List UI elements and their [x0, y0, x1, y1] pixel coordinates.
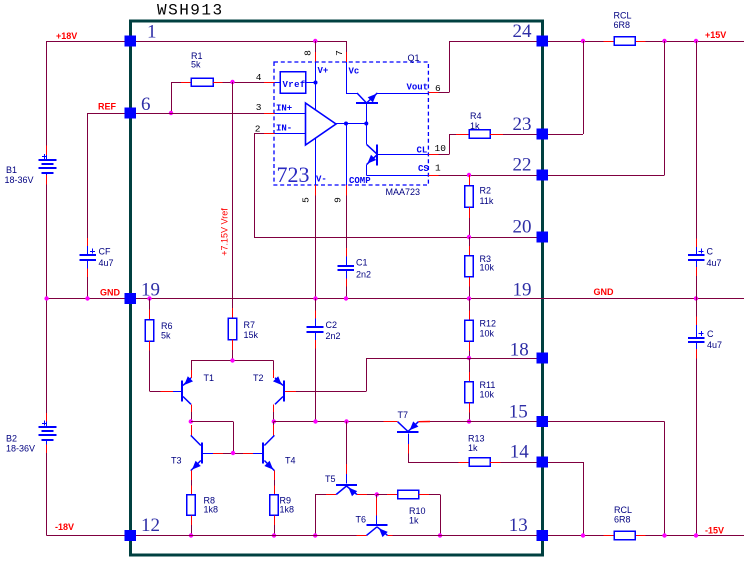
svg-text:IN+: IN+ — [276, 104, 292, 114]
svg-text:T7: T7 — [398, 410, 409, 420]
svg-text:T3: T3 — [171, 456, 182, 466]
svg-text:R11: R11 — [480, 380, 496, 390]
svg-text:3: 3 — [256, 102, 262, 113]
svg-text:WSH913: WSH913 — [157, 2, 224, 20]
svg-text:+15V: +15V — [705, 30, 726, 40]
svg-text:14: 14 — [510, 442, 530, 463]
svg-text:Vref: Vref — [283, 80, 306, 90]
svg-text:1: 1 — [147, 22, 157, 43]
svg-text:REF: REF — [98, 102, 117, 112]
svg-text:-15V: -15V — [705, 526, 724, 536]
svg-text:RCL: RCL — [614, 505, 632, 515]
svg-text:1: 1 — [435, 163, 441, 174]
svg-text:B1: B1 — [6, 165, 17, 175]
svg-text:R7: R7 — [244, 320, 256, 330]
svg-text:4u7: 4u7 — [707, 340, 722, 350]
svg-text:C: C — [707, 329, 714, 339]
svg-text:8: 8 — [303, 50, 314, 56]
svg-text:18-36V: 18-36V — [5, 175, 34, 185]
svg-text:Vc: Vc — [349, 67, 360, 77]
svg-text:T4: T4 — [285, 456, 296, 466]
svg-text:2: 2 — [255, 124, 261, 135]
svg-text:V+: V+ — [318, 66, 329, 76]
svg-text:20: 20 — [513, 217, 532, 238]
svg-text:R13: R13 — [468, 434, 485, 444]
svg-text:19: 19 — [513, 279, 532, 300]
svg-text:+18V: +18V — [56, 31, 77, 41]
svg-text:10k: 10k — [480, 329, 495, 339]
svg-text:12: 12 — [141, 515, 160, 536]
svg-text:1k: 1k — [409, 516, 419, 526]
svg-text:CL: CL — [417, 146, 428, 156]
svg-text:CS: CS — [418, 164, 429, 174]
svg-text:5k: 5k — [161, 331, 171, 341]
svg-text:15: 15 — [509, 402, 528, 423]
svg-text:C1: C1 — [356, 257, 368, 267]
svg-text:1k: 1k — [470, 121, 480, 131]
svg-text:T6: T6 — [356, 515, 367, 525]
svg-text:7: 7 — [334, 50, 345, 56]
svg-text:Vout: Vout — [407, 83, 429, 93]
svg-text:1k: 1k — [468, 443, 478, 453]
svg-text:15k: 15k — [244, 330, 259, 340]
svg-text:+7.15V Vref: +7.15V Vref — [220, 208, 230, 256]
svg-text:R4: R4 — [470, 111, 482, 121]
svg-text:4u7: 4u7 — [707, 258, 722, 268]
svg-text:T1: T1 — [204, 373, 215, 383]
svg-text:B2: B2 — [6, 434, 17, 444]
svg-text:6R8: 6R8 — [614, 515, 631, 525]
svg-text:13: 13 — [509, 515, 528, 536]
svg-text:1k8: 1k8 — [280, 505, 295, 515]
svg-text:18: 18 — [510, 340, 529, 361]
svg-text:T2: T2 — [253, 373, 264, 383]
svg-text:GND: GND — [594, 287, 615, 297]
svg-text:T5: T5 — [325, 474, 336, 484]
svg-text:5k: 5k — [191, 60, 201, 70]
svg-text:5: 5 — [301, 197, 312, 203]
svg-text:4u7: 4u7 — [99, 258, 114, 268]
svg-text:6: 6 — [141, 94, 151, 115]
svg-text:10: 10 — [435, 143, 447, 154]
svg-text:RCL: RCL — [614, 11, 632, 21]
svg-text:-18V: -18V — [55, 522, 74, 532]
svg-text:COMP: COMP — [349, 176, 371, 186]
svg-text:11k: 11k — [480, 196, 494, 206]
svg-text:22: 22 — [513, 155, 532, 176]
svg-text:R6: R6 — [161, 321, 173, 331]
svg-text:R2: R2 — [480, 185, 492, 195]
svg-text:CF: CF — [99, 247, 111, 257]
svg-text:R10: R10 — [409, 506, 426, 516]
svg-text:R12: R12 — [480, 319, 497, 329]
svg-text:Q1: Q1 — [408, 53, 420, 63]
svg-text:C: C — [707, 247, 714, 257]
svg-text:GND: GND — [100, 288, 121, 298]
svg-text:18-36V: 18-36V — [6, 444, 35, 454]
svg-text:4: 4 — [256, 72, 262, 83]
svg-text:723: 723 — [277, 162, 310, 187]
svg-text:10k: 10k — [480, 390, 495, 400]
svg-text:MAA723: MAA723 — [386, 187, 421, 197]
svg-text:6R8: 6R8 — [614, 20, 631, 30]
svg-text:2n2: 2n2 — [356, 270, 371, 280]
svg-text:2n2: 2n2 — [326, 331, 341, 341]
svg-text:23: 23 — [513, 114, 532, 135]
svg-text:24: 24 — [513, 21, 533, 42]
svg-text:C2: C2 — [326, 320, 338, 330]
svg-text:IN-: IN- — [276, 124, 292, 134]
svg-text:1k8: 1k8 — [204, 505, 219, 515]
svg-text:9: 9 — [333, 197, 344, 203]
svg-text:V-: V- — [316, 175, 327, 185]
svg-text:10k: 10k — [480, 263, 495, 273]
